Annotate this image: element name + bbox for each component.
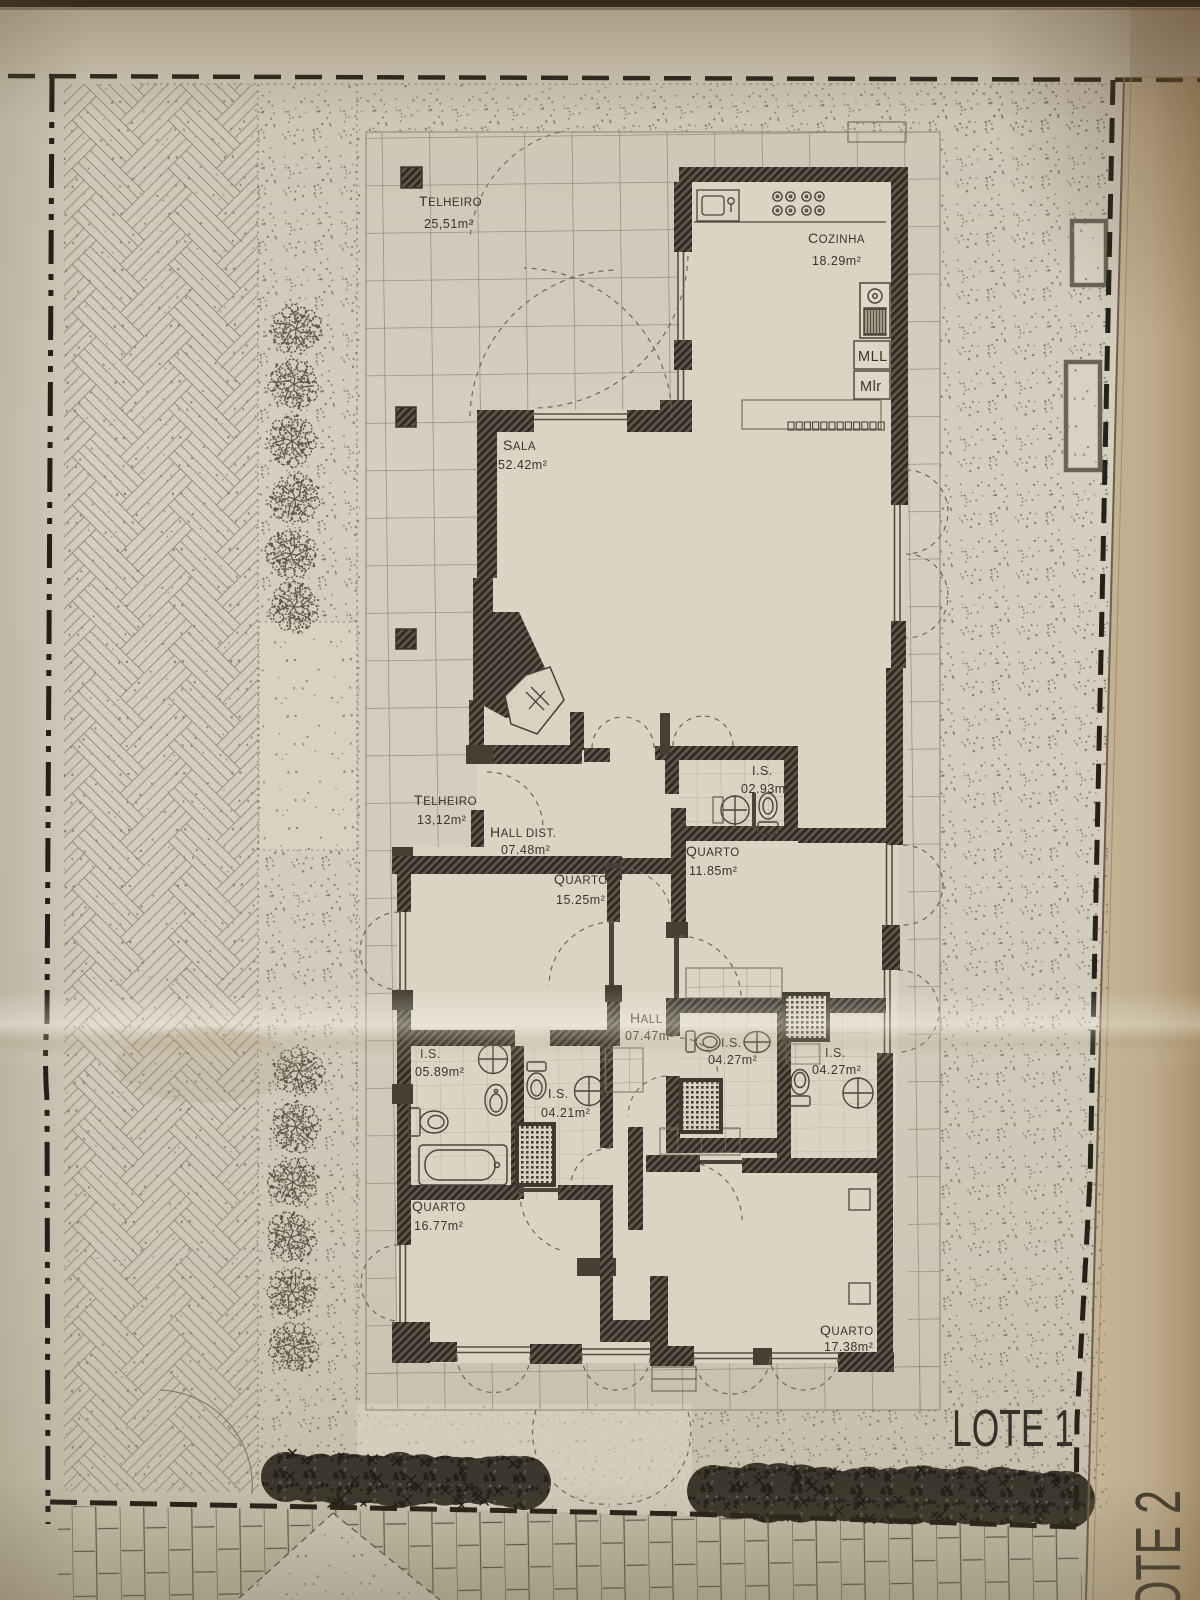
svg-text:LOTE 1: LOTE 1	[952, 1400, 1074, 1458]
svg-text:MLL: MLL	[858, 349, 888, 365]
svg-text:11.85m²: 11.85m²	[689, 864, 737, 878]
svg-text:25,51m²: 25,51m²	[424, 217, 473, 231]
svg-text:Mlr: Mlr	[860, 379, 882, 395]
svg-text:07.48m²: 07.48m²	[501, 843, 550, 857]
svg-text:13,12m²: 13,12m²	[417, 813, 466, 827]
svg-text:I.S.: I.S.	[752, 764, 773, 778]
svg-text:I.S.: I.S.	[548, 1087, 569, 1101]
svg-text:18.29m²: 18.29m²	[812, 254, 861, 268]
svg-text:04.21m²: 04.21m²	[541, 1106, 590, 1120]
svg-text:15.25m²: 15.25m²	[556, 893, 605, 907]
svg-text:02.93m²: 02.93m²	[741, 782, 790, 796]
svg-text:17.38m²: 17.38m²	[824, 1340, 873, 1354]
svg-text:16.77m²: 16.77m²	[414, 1219, 463, 1233]
svg-text:52.42m²: 52.42m²	[498, 458, 547, 472]
